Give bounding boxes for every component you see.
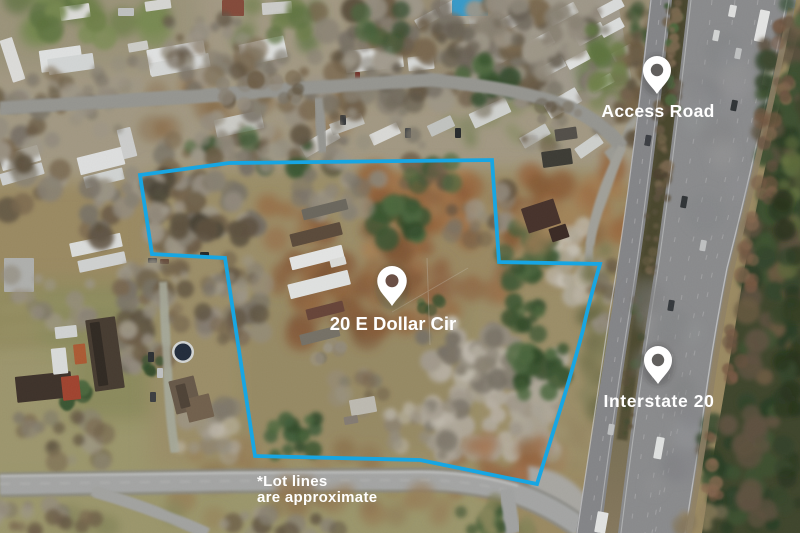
svg-text:are approximate: are approximate: [257, 489, 377, 506]
svg-text:20 E Dollar Cir: 20 E Dollar Cir: [330, 313, 456, 334]
svg-text:Interstate 20: Interstate 20: [604, 391, 715, 411]
svg-text:Access Road: Access Road: [601, 101, 714, 121]
svg-text:*Lot lines: *Lot lines: [257, 473, 328, 490]
